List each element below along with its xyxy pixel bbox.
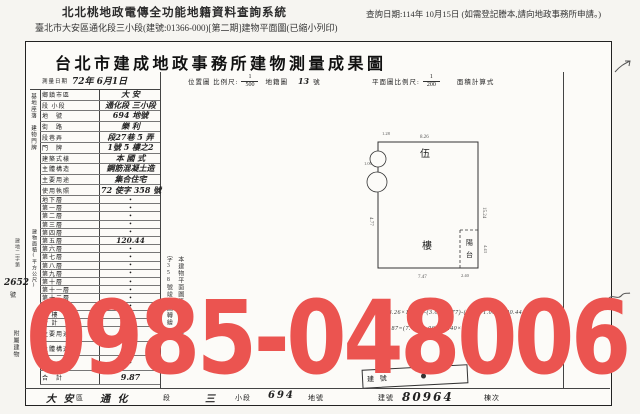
watermark-phone-number: 0985-048006: [26, 288, 628, 390]
floor-row-value: •: [101, 204, 160, 212]
dim-balcony-bottom: 2.40: [461, 273, 470, 278]
info-row-value: 集合住宅: [101, 174, 160, 185]
info-row-label: 建築式樣: [40, 154, 101, 163]
info-row-label: 段巷弄: [40, 133, 101, 142]
info-row-label: 門 牌: [40, 143, 101, 152]
plan-scale-label: 平面圖比例尺:: [372, 76, 420, 86]
info-row-value: 樂 利: [101, 121, 160, 132]
info-row-value: 大 安: [101, 89, 160, 100]
balcony-char-top: 陽: [466, 238, 473, 247]
location-scale: 位置圖 比例尺: 1 500 地籍圖 13 號: [188, 74, 320, 88]
group-address-label: 建物門牌: [29, 124, 37, 152]
info-row-value: 鋼筋混凝土造: [101, 163, 160, 174]
plan-scale-fraction: 1 200: [423, 74, 440, 88]
dim-balcony-right: 4.43: [483, 245, 488, 254]
info-row-label: 段 小段: [40, 101, 101, 110]
dim-notch-b: 1.00: [364, 161, 373, 166]
info-row-value: 本 國 式: [101, 153, 160, 164]
plan-scale: 平面圖比例尺: 1 200 面積計算式: [372, 74, 494, 88]
floor-plan-drawing: 伍 樓 陽 台 8.26 15.24 7.47 4.77 2.40 4.43 1…: [340, 125, 530, 285]
document-subtitle: 臺北市大安區通化段三小段(建號:01366-000)[第二期]建物平面圖(已縮小…: [35, 21, 337, 34]
cadastre-label: 地籍圖: [265, 76, 288, 86]
group-site-label: 基地座落: [29, 92, 37, 120]
location-map-label: 位置圖 比例尺:: [188, 76, 238, 86]
floor-row-value: •: [101, 261, 160, 269]
info-row-label: 地 號: [40, 111, 101, 120]
balcony-char-bottom: 台: [466, 250, 473, 259]
dim-top: 8.26: [420, 135, 429, 140]
cadastre-suffix: 號: [313, 76, 320, 86]
info-row-label: 街 路: [40, 122, 101, 131]
bay-window-top: [370, 151, 386, 167]
annex-group-label: 附屬建物: [11, 330, 20, 384]
plan-floor-char-bottom: 樓: [422, 239, 432, 252]
bay-window-bottom: [367, 172, 387, 192]
receipt-suffix: 號: [10, 290, 16, 299]
info-row-value: 694 地號: [101, 110, 160, 121]
info-row-label: 主體構造: [40, 164, 101, 173]
query-date: 查詢日期:114年 10月15日 (如需登記謄本,請向地政事務所申請。): [366, 8, 601, 20]
floor-row-value: 120.44: [101, 236, 160, 245]
floor-row-value: •: [101, 253, 160, 261]
receipt-prefix: 建地二字第: [13, 238, 20, 278]
info-row-label: 鄉鎮市區: [40, 90, 101, 99]
info-row-value: 段27巷 5 弄: [101, 132, 160, 143]
floor-row-value: •: [101, 220, 160, 228]
plan-floor-char-top: 伍: [420, 148, 430, 160]
system-title: 北北桃地政電傳全功能地籍資料查詢系統: [62, 4, 287, 20]
survey-date-label: 測量日期: [42, 77, 68, 85]
area-calc-label: 面積計算式: [457, 76, 495, 86]
handwritten-scribble-icon: [612, 58, 634, 78]
dim-notch-a: 1.28: [382, 131, 391, 136]
dim-left: 4.77: [368, 217, 373, 226]
info-row-value: 1號 5 樓之2: [101, 142, 160, 153]
info-row-label: 使用執照: [40, 186, 101, 195]
floor-row-value: •: [101, 269, 160, 277]
floor-row-value: •: [101, 245, 160, 253]
info-row-value: 通化段 三小段: [101, 100, 160, 111]
floor-row-value: •: [101, 212, 160, 220]
info-row-label: 主要用途: [40, 175, 101, 184]
info-row-value: 72 使字 358 號: [101, 185, 161, 196]
location-scale-fraction: 1 500: [241, 74, 258, 88]
survey-date-value: 72年 6月1日: [72, 74, 127, 87]
floor-row-value: •: [101, 196, 160, 204]
document-title: 台北市建成地政事務所建物測量成果圖: [55, 50, 387, 74]
dim-right: 15.24: [481, 207, 486, 219]
cadastre-value: 13: [298, 76, 309, 86]
